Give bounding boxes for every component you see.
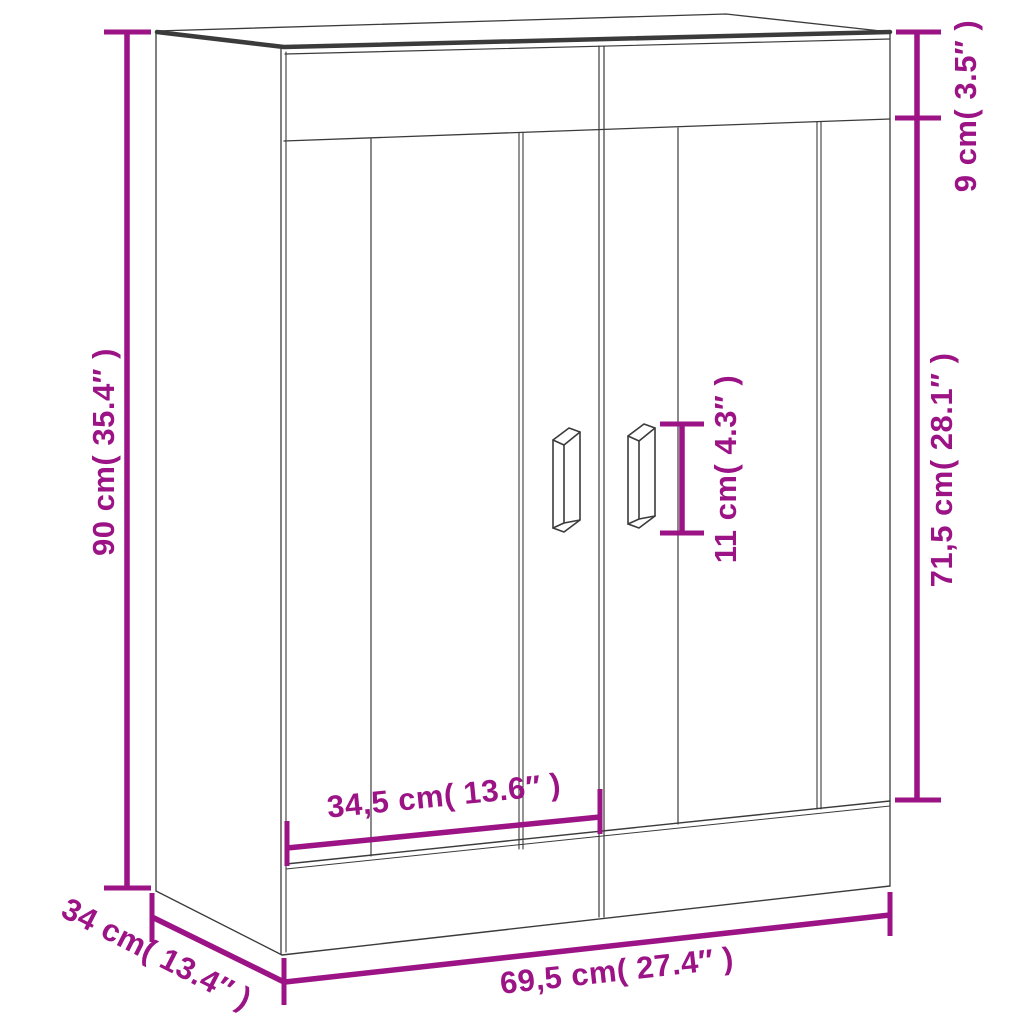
right-door-handle	[628, 424, 655, 528]
door-center-gap	[599, 46, 604, 917]
door-width-dim-label: 34,5 cm( 13.6″ )	[325, 766, 562, 824]
cabinet-top-edge-thick	[157, 32, 890, 47]
cabinet-bottom-front-edge	[282, 886, 890, 955]
top-rail-dim-label: 9 cm( 3.5″ )	[948, 20, 983, 192]
product-dimension-diagram: 90 cm( 35.4″ ) 9 cm( 3.5″ ) 71,5 cm( 28.…	[0, 0, 1024, 1024]
width-dim-label: 69,5 cm( 27.4″ )	[498, 940, 735, 1001]
right-door	[678, 122, 821, 824]
cabinet-diagram-svg: 90 cm( 35.4″ ) 9 cm( 3.5″ ) 71,5 cm( 28.…	[0, 0, 1024, 1024]
dimension-top-rail	[895, 32, 941, 118]
left-door-handle	[553, 428, 580, 532]
handle-dim-label: 11 cm( 4.3″ )	[708, 375, 743, 564]
top-rail-bottom-edge	[284, 119, 890, 141]
height-dim-label: 90 cm( 35.4″ )	[86, 348, 121, 556]
cabinet-outline	[156, 14, 890, 955]
left-door	[371, 133, 523, 856]
door-height-dim-label: 71,5 cm( 28.1″ )	[924, 353, 959, 588]
dimension-handle-length	[660, 424, 704, 533]
